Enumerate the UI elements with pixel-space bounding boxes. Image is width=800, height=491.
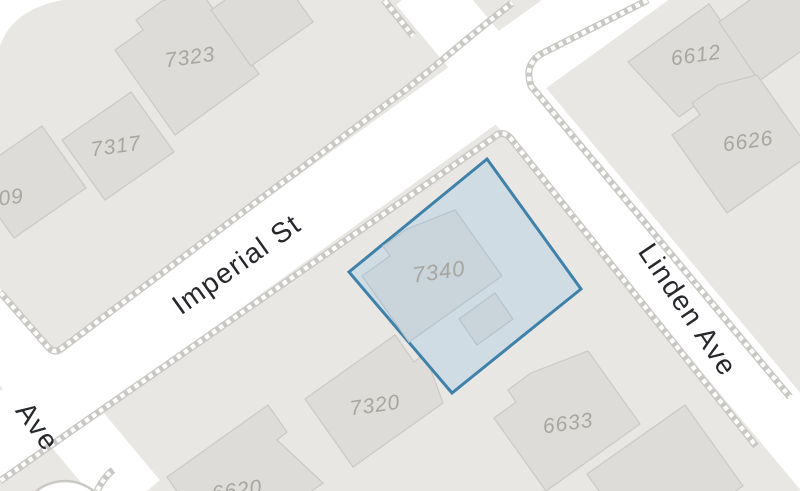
building-label-09: 09 [0,184,25,210]
map-canvas[interactable]: 7340 7323 7317 09 6612 6626 7320 6633 66… [0,0,800,491]
